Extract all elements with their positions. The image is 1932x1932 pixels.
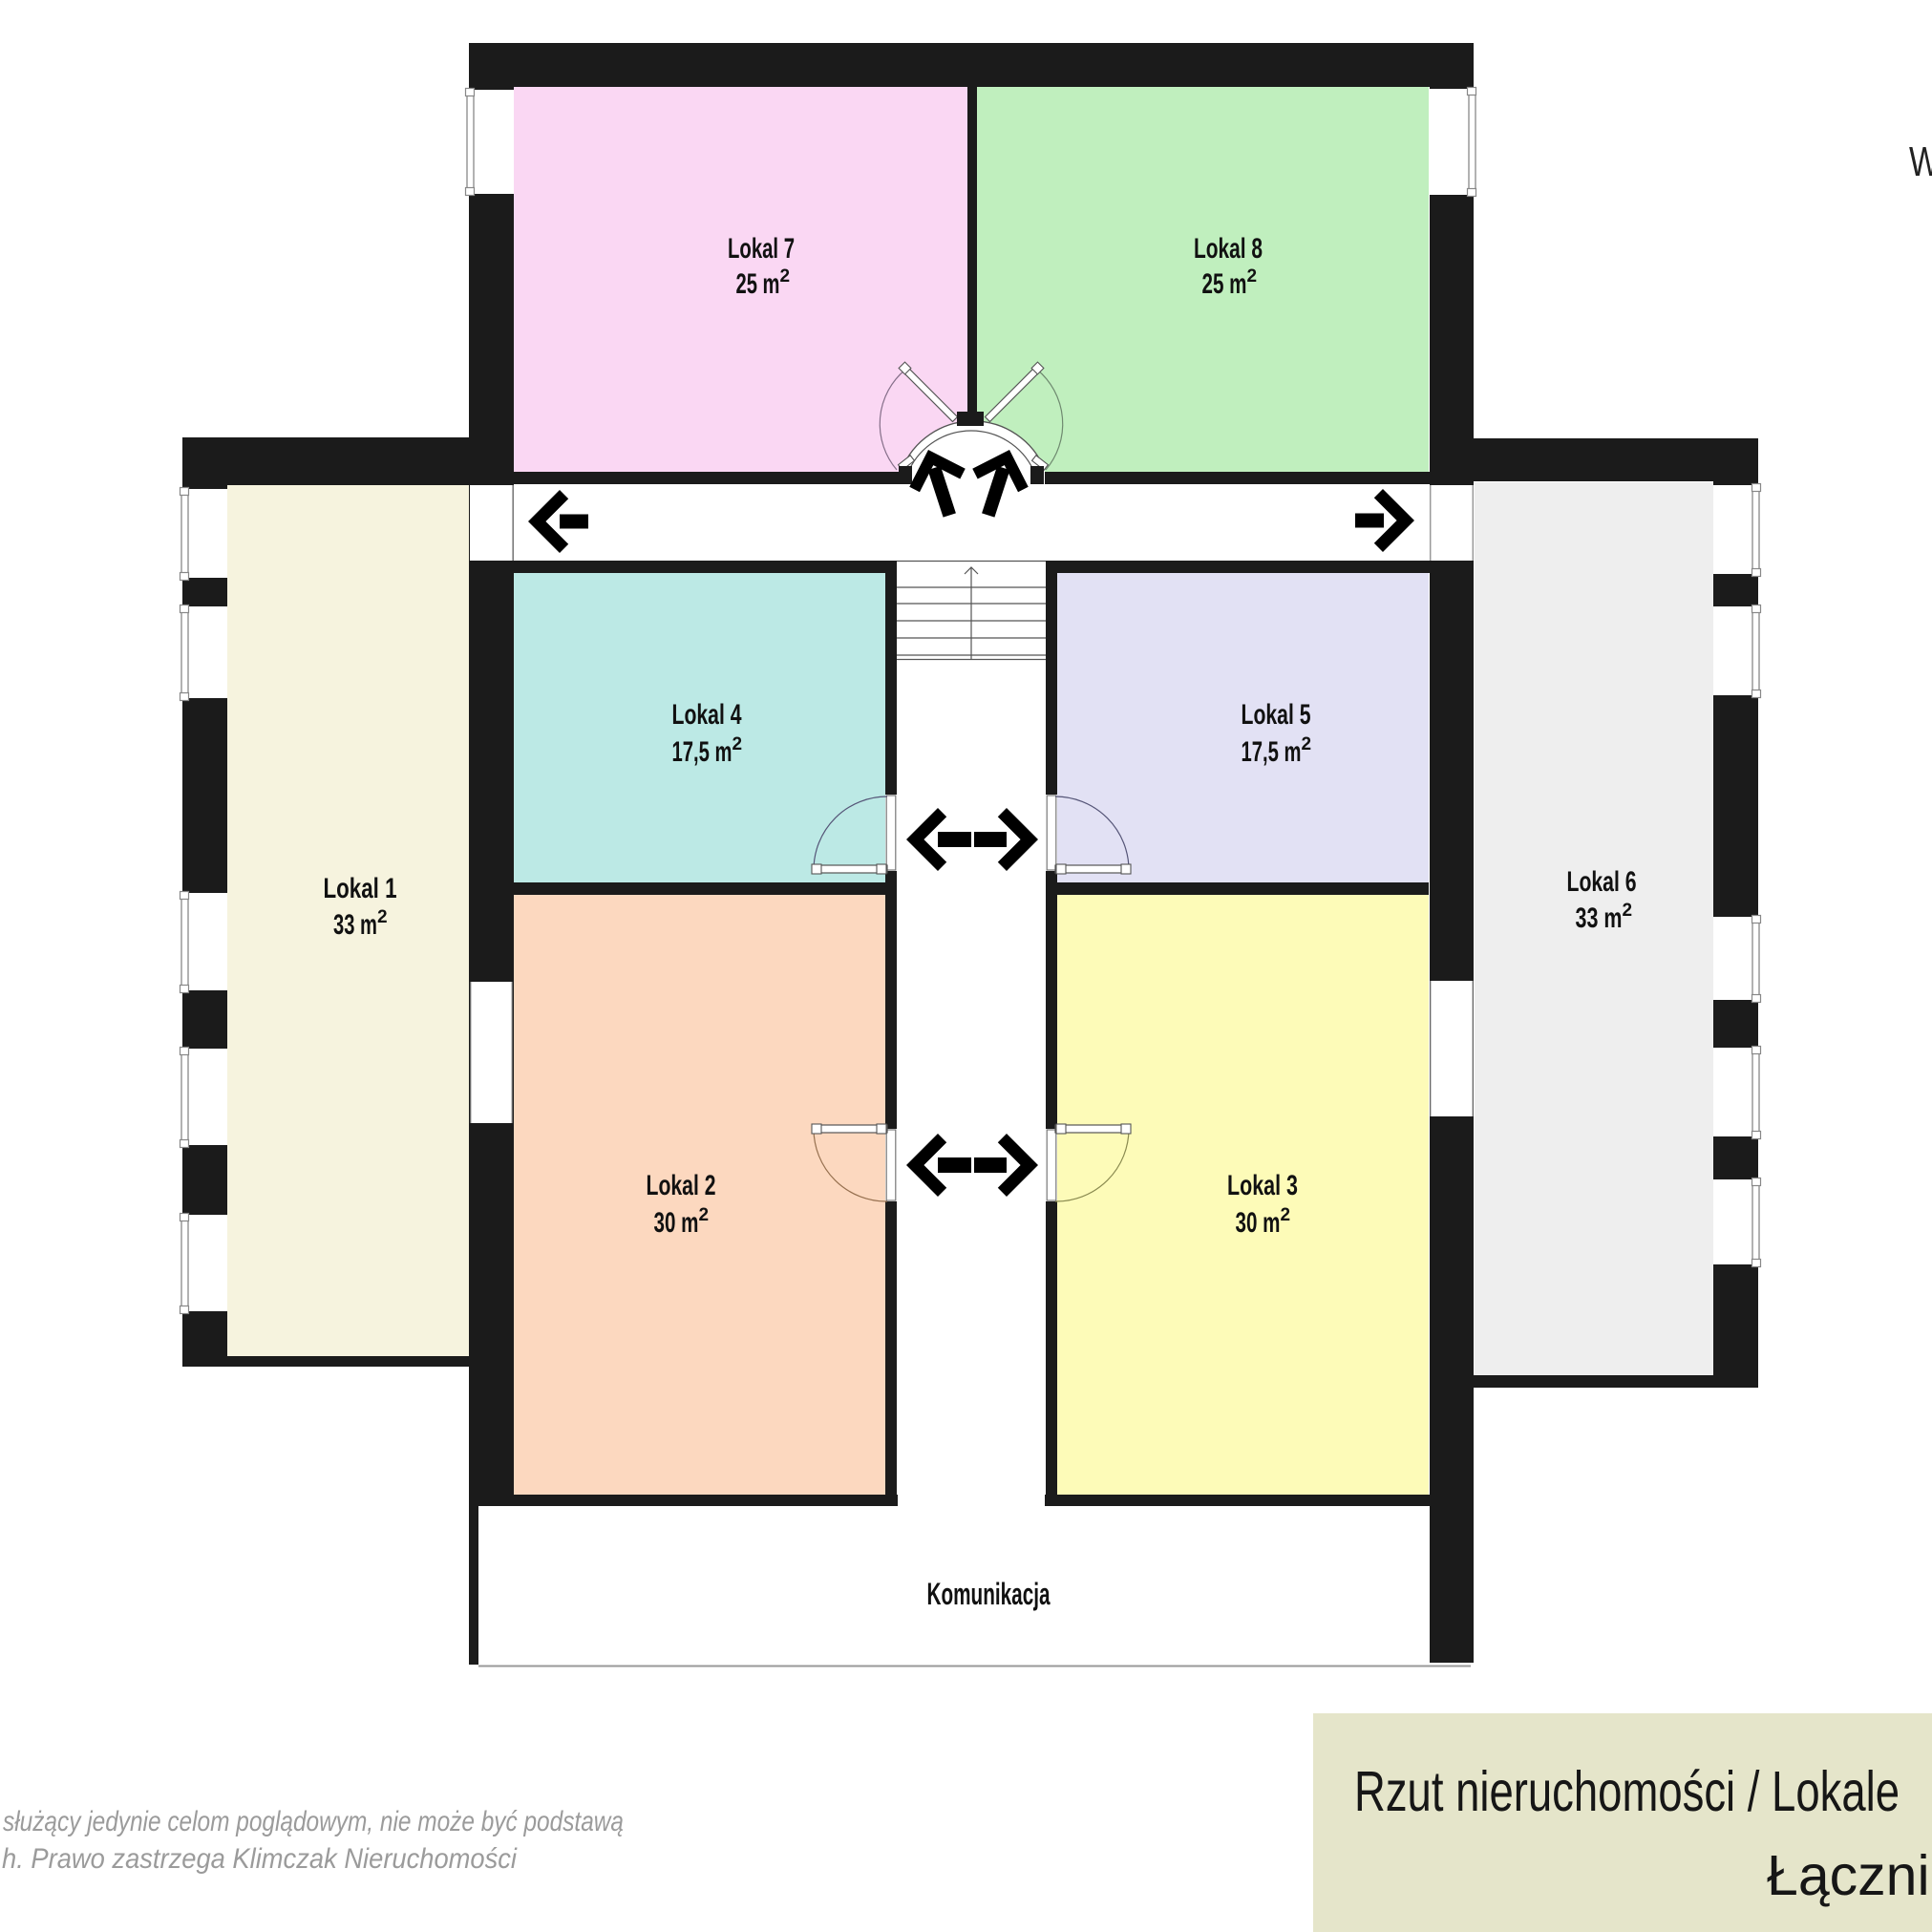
svg-text:17,5 m: 17,5 m (1242, 736, 1302, 768)
svg-text:25 m: 25 m (736, 268, 780, 300)
svg-text:2: 2 (732, 734, 743, 754)
svg-text:2: 2 (1302, 734, 1312, 754)
svg-text:33 m: 33 m (1576, 902, 1623, 934)
svg-text:Komunikacja: Komunikacja (927, 1577, 1051, 1611)
svg-text:2: 2 (699, 1205, 710, 1225)
svg-text:Lokal 2: Lokal 2 (647, 1170, 716, 1201)
svg-text:2: 2 (1247, 266, 1258, 287)
svg-text:2: 2 (1281, 1205, 1291, 1225)
svg-text:30 m: 30 m (1236, 1207, 1281, 1239)
svg-text:służący jedynie celom poglądow: służący jedynie celom poglądowym, nie mo… (3, 1806, 624, 1837)
svg-text:Lokal 7: Lokal 7 (728, 233, 795, 265)
svg-text:Lokal 1: Lokal 1 (324, 873, 397, 904)
svg-text:h. Prawo zastrzega Klimczak Ni: h. Prawo zastrzega Klimczak Nieruchomośc… (2, 1843, 518, 1875)
svg-text:30 m: 30 m (654, 1207, 699, 1239)
svg-text:2: 2 (377, 907, 388, 927)
svg-text:Lokal 6: Lokal 6 (1567, 866, 1637, 898)
svg-text:Lokal 3: Lokal 3 (1227, 1170, 1298, 1201)
svg-text:Lokal 8: Lokal 8 (1194, 233, 1263, 265)
svg-text:Lokal 4: Lokal 4 (672, 699, 742, 731)
svg-text:W: W (1909, 138, 1932, 185)
svg-text:17,5 m: 17,5 m (672, 736, 732, 768)
svg-text:Rzut nieruchomości / Lokale: Rzut nieruchomości / Lokale (1354, 1760, 1900, 1823)
svg-text:2: 2 (1623, 901, 1633, 921)
svg-text:Lokal 5: Lokal 5 (1242, 699, 1311, 731)
svg-text:33 m: 33 m (333, 909, 377, 941)
svg-text:25 m: 25 m (1202, 268, 1247, 300)
svg-text:Łącznie 210,5 m: Łącznie 210,5 m (1767, 1844, 1932, 1907)
svg-text:2: 2 (780, 266, 791, 287)
